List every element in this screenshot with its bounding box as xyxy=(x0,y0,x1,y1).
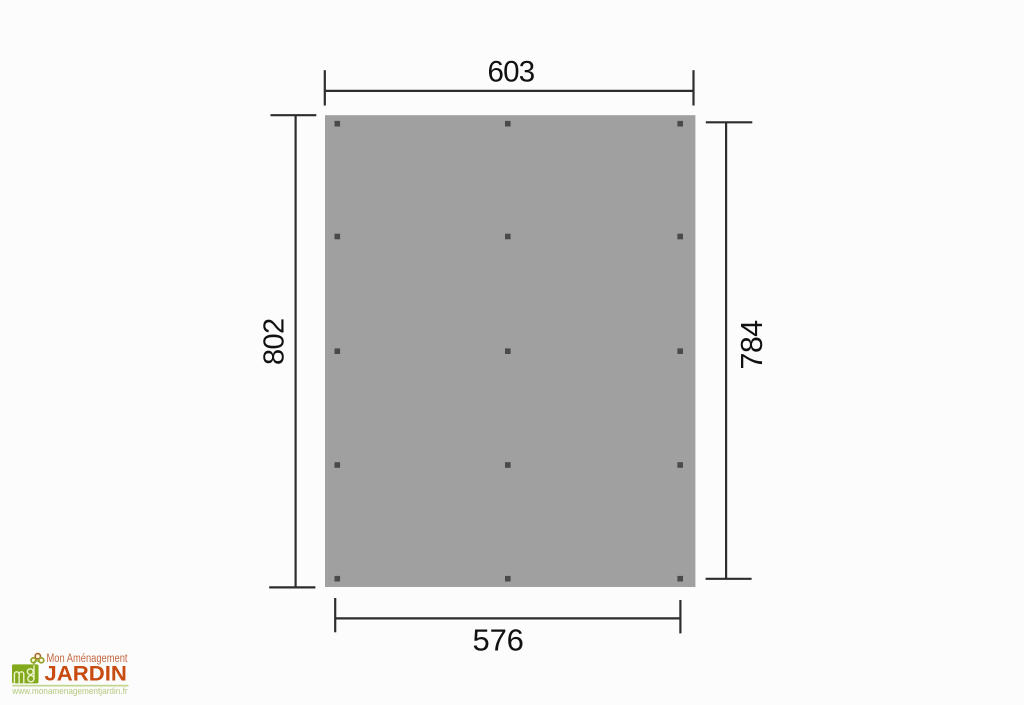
svg-text:802: 802 xyxy=(258,318,290,365)
svg-text:603: 603 xyxy=(487,56,534,89)
svg-text:576: 576 xyxy=(473,623,524,658)
svg-text:JARDIN: JARDIN xyxy=(44,661,126,686)
svg-text:784: 784 xyxy=(735,320,769,370)
svg-text:www.monamenagementjardin.fr: www.monamenagementjardin.fr xyxy=(11,686,127,696)
